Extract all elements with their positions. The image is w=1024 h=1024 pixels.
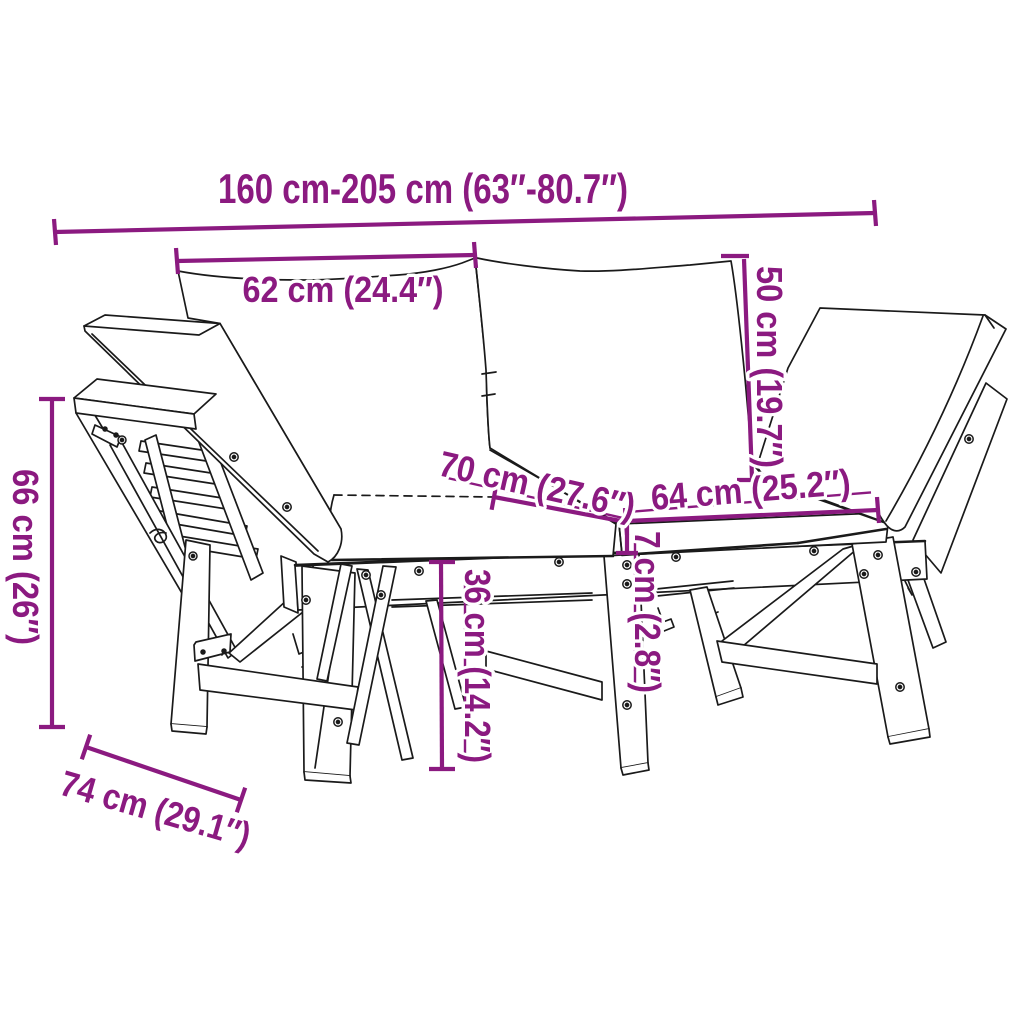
svg-text:7 cm (2.8″): 7 cm (2.8″) [627,531,668,693]
svg-text:66 cm (26″): 66 cm (26″) [5,469,46,645]
svg-text:36 cm (14.2″): 36 cm (14.2″) [457,569,498,763]
svg-text:160 cm-205 cm (63″-80.7″): 160 cm-205 cm (63″-80.7″) [218,165,628,212]
svg-text:50 cm (19.7″): 50 cm (19.7″) [749,266,790,468]
svg-text:62 cm (24.4″): 62 cm (24.4″) [243,269,444,310]
